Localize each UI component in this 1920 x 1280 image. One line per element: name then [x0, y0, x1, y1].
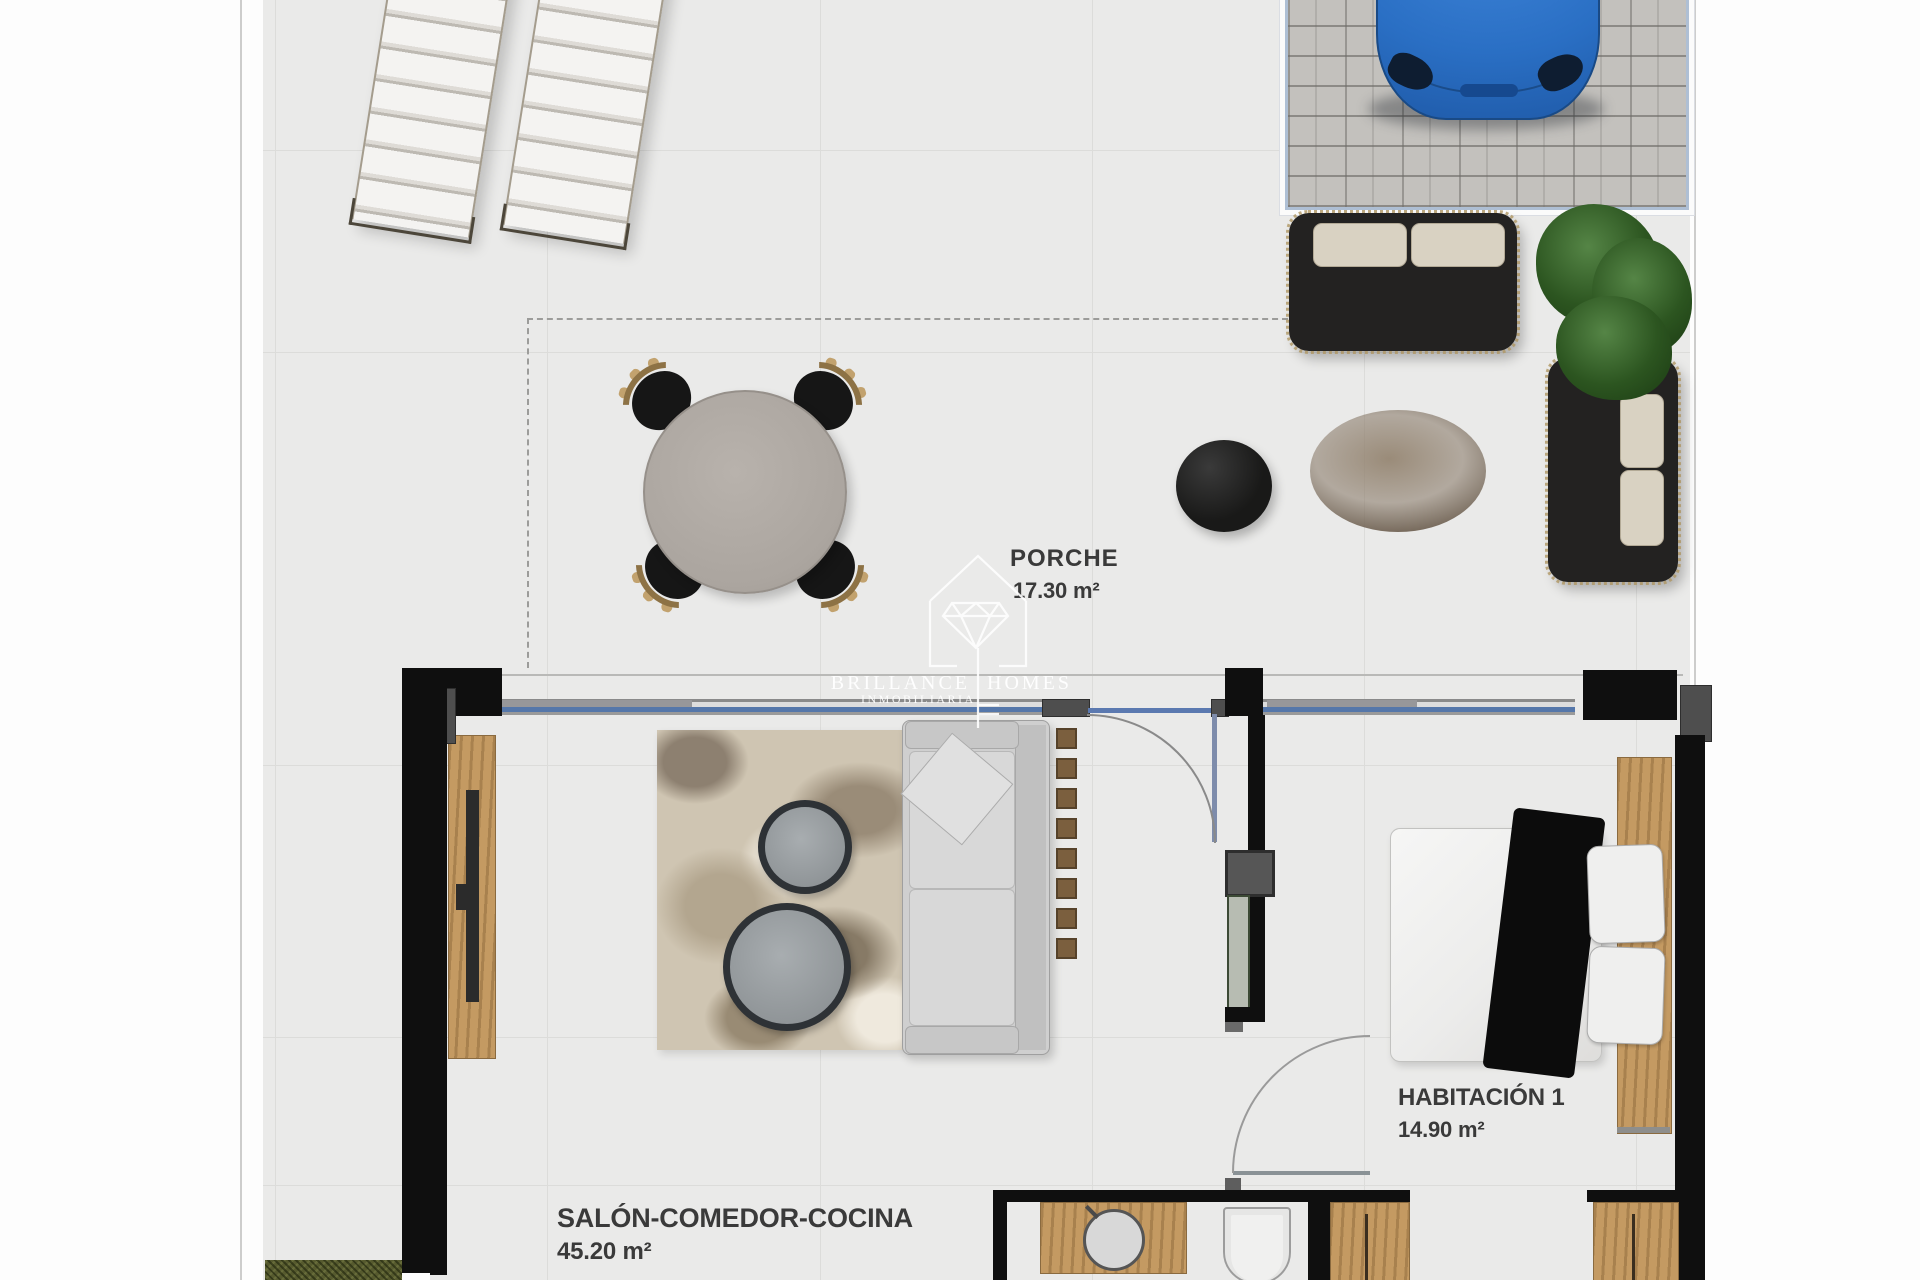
wall-left-exterior — [402, 668, 447, 1275]
dining-table — [643, 390, 847, 594]
sofa-cushion — [1313, 223, 1407, 267]
toilet-cistern-nib — [1225, 1178, 1241, 1190]
bedroom-area: 14.90 m² — [1398, 1117, 1484, 1143]
wall-bottom-right-segment — [1587, 1190, 1680, 1202]
tile-gridline — [275, 0, 276, 1280]
living-room-label: SALÓN-COMEDOR-COCINA — [557, 1203, 913, 1234]
sliding-door-pocket — [1225, 850, 1275, 897]
wall-pillar-right — [1680, 685, 1712, 742]
shelf-square — [1056, 848, 1077, 869]
wall-bathroom-right — [1308, 1190, 1330, 1280]
coffee-table-large — [723, 903, 851, 1031]
toilet — [1223, 1207, 1291, 1280]
bed-pillow — [1586, 844, 1665, 945]
door-threshold — [1088, 708, 1213, 713]
sofa-seat-cushion — [909, 889, 1015, 1026]
tv-screen — [466, 790, 479, 1002]
headboard-edge — [1617, 1127, 1670, 1133]
pouf-black — [1176, 440, 1272, 532]
porch-dashed-boundary-top — [527, 318, 1288, 320]
window-mullion — [1042, 699, 1090, 717]
wardrobe-right — [1593, 1202, 1679, 1280]
bed-pillow — [1586, 946, 1665, 1046]
tile-gridline — [820, 0, 821, 1280]
oval-coffee-table — [1310, 410, 1486, 532]
tile-gridline — [263, 1185, 1690, 1186]
plan-left-border — [240, 0, 242, 1280]
outdoor-sofa-horizontal — [1289, 213, 1517, 351]
wall-outer-line — [502, 674, 1683, 676]
shelf-square — [1056, 818, 1077, 839]
wall-hall-end — [1225, 1007, 1265, 1022]
toilet-bowl — [1231, 1215, 1283, 1280]
sofa-cushion — [1411, 223, 1505, 267]
bedroom-label: HABITACIÓN 1 — [1398, 1084, 1565, 1112]
tile-gridline — [1092, 0, 1093, 1280]
shelf-square — [1056, 938, 1077, 959]
sofa-armrest — [905, 1026, 1019, 1054]
sofa-backrest — [1015, 725, 1046, 1050]
car-grill — [1460, 84, 1518, 97]
wardrobe-left — [1330, 1202, 1410, 1280]
brand-subtitle: INMOBILIARIA — [861, 692, 976, 707]
wall-notch — [402, 1273, 430, 1280]
brand-word-right: HOMES — [987, 672, 1072, 695]
wardrobe-divider — [1632, 1214, 1635, 1280]
wall-bottom-left-segment — [1330, 1190, 1410, 1202]
sofa-cushion — [1620, 470, 1664, 546]
grass-patch — [265, 1260, 402, 1280]
wall-block-top-right — [1583, 670, 1677, 720]
bathroom-basin — [1083, 1209, 1145, 1271]
floor-plan-canvas: PORCHE 17.30 m² SALÓN-COMEDOR-COCINA 45.… — [0, 0, 1920, 1280]
coffee-table-small — [758, 800, 852, 894]
shelf-square — [1056, 788, 1077, 809]
wall-bathroom-top — [993, 1190, 1310, 1202]
porch-dashed-boundary-left — [527, 318, 529, 668]
bed-headboard — [1617, 757, 1672, 1134]
wardrobe-divider — [1365, 1214, 1368, 1280]
sliding-door-leaf — [1227, 895, 1250, 1011]
shelf-square — [1056, 878, 1077, 899]
wall-bathroom-left — [993, 1190, 1007, 1280]
porch-area: 17.30 m² — [1013, 578, 1099, 604]
shelf-square — [1056, 908, 1077, 929]
wall-end-cap — [1225, 1022, 1243, 1032]
window-sill — [502, 700, 692, 707]
door-leaf-living — [1212, 714, 1217, 842]
sofa-cushion — [1620, 394, 1664, 468]
window-sill — [1267, 700, 1417, 707]
living-room-sofa — [902, 720, 1050, 1055]
shelf-square — [1056, 758, 1077, 779]
door-leaf-bedroom — [1233, 1171, 1370, 1175]
shelf-square — [1056, 728, 1077, 749]
tv-mount — [456, 884, 466, 910]
porch-label: PORCHE — [1010, 545, 1119, 573]
living-room-area: 45.20 m² — [557, 1238, 651, 1266]
